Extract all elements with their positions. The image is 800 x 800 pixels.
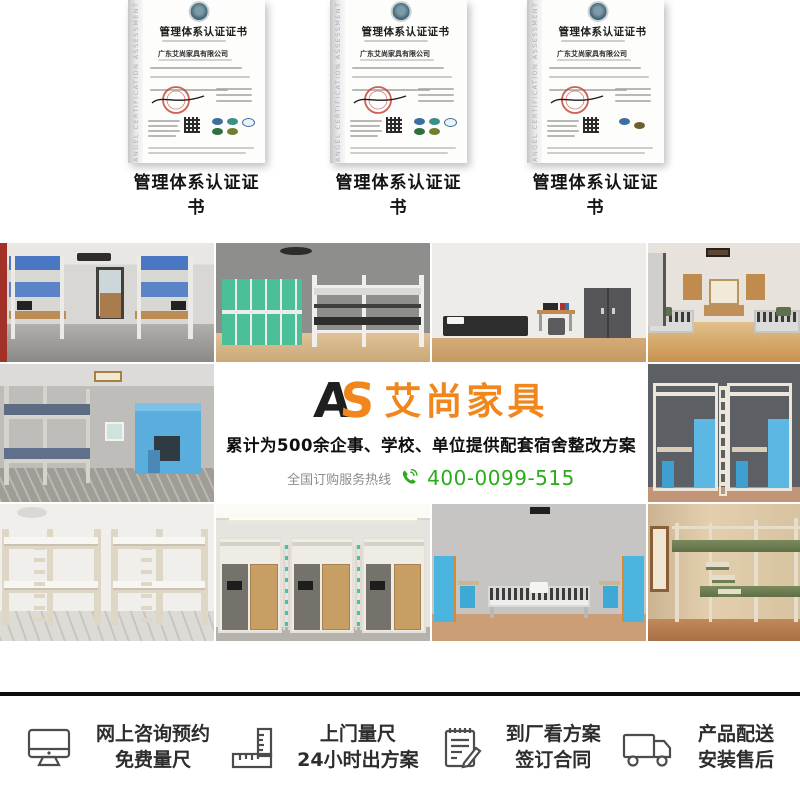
certificate-text-line bbox=[158, 59, 232, 61]
back-desk bbox=[704, 305, 744, 316]
bed-post bbox=[675, 523, 679, 622]
certificates-section: ANGEL CERTIFICATION ASSESSMENT SERVICES … bbox=[0, 0, 800, 240]
bed-shelf bbox=[314, 304, 421, 309]
bunk-bed-panel bbox=[9, 256, 65, 270]
accreditation-badge bbox=[619, 118, 630, 125]
certificate-emblem-icon bbox=[390, 1, 411, 22]
wall-picture bbox=[105, 422, 124, 441]
service-line2: 免费量尺 bbox=[96, 748, 210, 774]
bed-rail bbox=[312, 330, 423, 334]
certificate-title: 管理体系认证证书 bbox=[145, 24, 262, 39]
bed-rail bbox=[4, 415, 90, 419]
lockers bbox=[222, 279, 301, 346]
certificate-side-text: ANGEL CERTIFICATION ASSESSMENT SERVICES bbox=[132, 2, 140, 162]
certificate-footer-line bbox=[547, 130, 579, 132]
service-text: 网上咨询预约 免费量尺 bbox=[96, 722, 210, 773]
certificate-serial bbox=[364, 40, 428, 42]
bunk-bed-panel bbox=[137, 256, 193, 270]
certificate-2: ANGEL CERTIFICATION ASSESSMENT SERVICES … bbox=[330, 0, 467, 163]
accreditation-badge bbox=[414, 118, 425, 125]
certificate-fineprint bbox=[350, 147, 456, 149]
gallery-photo-r1c2 bbox=[216, 243, 430, 362]
accreditation-badge bbox=[227, 118, 238, 125]
certificate-date-line bbox=[615, 100, 651, 102]
service-line1: 上门量尺 bbox=[297, 722, 418, 748]
certificate-side-text: ANGEL CERTIFICATION ASSESSMENT SERVICES bbox=[531, 2, 539, 162]
gallery-photo-r1c3 bbox=[432, 243, 646, 362]
bed-post bbox=[137, 256, 141, 339]
service-item-delivery: 产品配送 安装售后 bbox=[622, 722, 774, 773]
gallery-photo-r3c4 bbox=[648, 504, 800, 641]
floor bbox=[0, 324, 214, 362]
book bbox=[565, 303, 569, 310]
certificate-emblem-icon bbox=[587, 1, 608, 22]
lower-deck bbox=[700, 586, 800, 597]
brand-banner: A S 艾尚家具 累计为500余企事、学校、单位提供配套宿舍整改方案 全国订购服… bbox=[216, 364, 646, 502]
cabinet-seam bbox=[607, 288, 609, 338]
lower-mattress bbox=[4, 581, 98, 591]
promo-page: ANGEL CERTIFICATION ASSESSMENT SERVICES … bbox=[0, 0, 800, 800]
certificate-footer-line bbox=[350, 120, 382, 122]
ceiling-light bbox=[280, 247, 312, 255]
ceiling-light bbox=[706, 248, 730, 258]
contract-icon bbox=[440, 726, 482, 770]
certificate-footer-line bbox=[148, 135, 176, 137]
certificate-title: 管理体系认证证书 bbox=[347, 24, 464, 39]
cabinet-handle bbox=[612, 308, 615, 314]
blue-wardrobe bbox=[434, 556, 455, 622]
certificate-text-line bbox=[150, 76, 250, 78]
certificate-date-line bbox=[418, 94, 454, 96]
chair bbox=[548, 318, 565, 335]
certificate-text-line bbox=[150, 67, 242, 69]
certificate-text-line bbox=[360, 59, 434, 61]
gallery-photo-r1c1 bbox=[0, 243, 214, 362]
gallery-photo-r3c3 bbox=[432, 504, 646, 641]
monitor bbox=[227, 581, 242, 591]
monitor bbox=[370, 581, 385, 591]
bunk-bed-cabinet bbox=[137, 282, 193, 296]
certificate-serial bbox=[162, 40, 226, 42]
wardrobe-door bbox=[250, 564, 278, 630]
service-item-measure: 上门量尺 24小时出方案 bbox=[231, 722, 418, 773]
certificate-date-line bbox=[216, 100, 252, 102]
certificate-fineprint bbox=[148, 152, 246, 154]
service-text: 产品配送 安装售后 bbox=[698, 722, 774, 773]
certificate-company: 广东艾尚家具有限公司 bbox=[360, 49, 430, 59]
certificate-edge: ANGEL CERTIFICATION ASSESSMENT SERVICES bbox=[128, 0, 143, 163]
service-item-contract: 到厂看方案 签订合同 bbox=[440, 722, 601, 773]
certificate-footer-line bbox=[547, 120, 579, 122]
desk-alcove bbox=[222, 564, 248, 630]
pillows bbox=[530, 582, 547, 593]
gallery-photo-r3c2 bbox=[216, 504, 430, 641]
green-bedding bbox=[776, 307, 791, 315]
bed-rail bbox=[730, 392, 789, 396]
partition bbox=[648, 253, 666, 327]
certificate-text-line bbox=[549, 67, 641, 69]
certificate-footer-line bbox=[148, 120, 180, 122]
wall-cabinet bbox=[744, 272, 767, 303]
chair bbox=[603, 586, 618, 608]
laptop bbox=[543, 303, 558, 310]
red-wall bbox=[0, 243, 7, 362]
mattress bbox=[314, 288, 421, 295]
certificate-text-line bbox=[557, 59, 631, 61]
accreditation-badge bbox=[212, 118, 223, 125]
service-item-online-consult: 网上咨询预约 免费量尺 bbox=[26, 722, 210, 773]
bed-post bbox=[754, 520, 758, 621]
service-line1: 网上咨询预约 bbox=[96, 722, 210, 748]
bed-post bbox=[60, 256, 64, 339]
bed-leg bbox=[584, 607, 588, 618]
accreditation-badge bbox=[414, 128, 425, 135]
lower-mattress bbox=[113, 581, 205, 591]
accreditation-badge bbox=[242, 118, 255, 127]
desk bbox=[732, 447, 767, 453]
desk bbox=[458, 581, 479, 585]
desk-alcove bbox=[294, 564, 320, 630]
accreditation-badge bbox=[429, 128, 440, 135]
certificate-fineprint bbox=[148, 147, 254, 149]
bed-leg bbox=[490, 607, 494, 618]
ladder bbox=[719, 386, 727, 496]
bunk-bed-cabinet bbox=[9, 282, 65, 296]
qr-code bbox=[386, 117, 402, 133]
certificate-company: 广东艾尚家具有限公司 bbox=[158, 49, 228, 59]
certificate-title: 管理体系认证证书 bbox=[544, 24, 661, 39]
wardrobe-door bbox=[322, 564, 350, 630]
ladder bbox=[34, 546, 45, 621]
certificate-text-line bbox=[352, 76, 452, 78]
accreditation-badge bbox=[429, 118, 440, 125]
services-bar: 网上咨询预约 免费量尺 上门量尺 24小时出方案 bbox=[0, 696, 800, 800]
mattress bbox=[314, 317, 421, 325]
window bbox=[709, 279, 739, 305]
certificate-caption: 管理体系认证证书 bbox=[128, 168, 265, 218]
certificate-footer-line bbox=[547, 135, 575, 137]
red-seal-icon bbox=[549, 82, 605, 118]
ceiling-light bbox=[77, 253, 111, 261]
cove-light bbox=[229, 518, 417, 521]
blue-wardrobe bbox=[768, 419, 789, 488]
certificate-date-line bbox=[216, 94, 252, 96]
certificate-date-line bbox=[615, 94, 651, 96]
logo-letter-s: S bbox=[338, 377, 376, 425]
upper-deck bbox=[672, 540, 800, 552]
floor bbox=[432, 614, 646, 641]
blue-wardrobe bbox=[694, 419, 715, 488]
gallery-photo-r2c4 bbox=[648, 364, 800, 502]
certificate-date-line bbox=[216, 88, 252, 90]
monitor bbox=[298, 581, 313, 591]
accreditation-badge bbox=[444, 118, 457, 127]
gallery-photo-r3c1 bbox=[0, 504, 214, 641]
gallery-photo-r1c4 bbox=[648, 243, 800, 362]
desk bbox=[599, 581, 620, 585]
certificate-date-line bbox=[615, 88, 651, 90]
ladder bbox=[141, 546, 152, 621]
ceiling-light bbox=[94, 371, 122, 382]
bed-rail bbox=[4, 459, 90, 463]
bed-rail bbox=[292, 542, 352, 546]
upper-mattress bbox=[4, 404, 90, 415]
qr-code bbox=[184, 117, 200, 133]
hotline-row: 全国订购服务热线 400-0099-515 bbox=[216, 466, 646, 490]
gallery-photo-r2c1 bbox=[0, 364, 214, 502]
certificate-text-line bbox=[549, 76, 649, 78]
door bbox=[100, 293, 121, 318]
truck-icon bbox=[622, 727, 674, 769]
service-line2: 签订合同 bbox=[506, 748, 601, 774]
certificate-footer-line bbox=[148, 125, 178, 127]
bed-post bbox=[43, 386, 47, 485]
ladder bbox=[355, 545, 362, 630]
bed-post bbox=[4, 386, 8, 485]
bed-rail bbox=[672, 526, 800, 529]
certificate-caption: 管理体系认证证书 bbox=[527, 168, 664, 218]
desk-leg bbox=[539, 313, 542, 331]
certificate-footer-line bbox=[350, 135, 378, 137]
wall-cabinet bbox=[681, 272, 704, 303]
stair-step bbox=[712, 575, 735, 583]
certificate-text-line bbox=[352, 67, 444, 69]
phone-icon bbox=[399, 468, 419, 488]
certificate-serial bbox=[561, 40, 625, 42]
upper-mattress bbox=[113, 537, 205, 547]
brand-logo: A S 艾尚家具 bbox=[216, 375, 646, 427]
service-line1: 到厂看方案 bbox=[506, 722, 601, 748]
service-line2: 24小时出方案 bbox=[297, 748, 418, 774]
hotline-label: 全国订购服务热线 bbox=[287, 469, 391, 488]
desk bbox=[657, 447, 692, 453]
bed-rail bbox=[656, 392, 715, 396]
qr-code bbox=[583, 117, 599, 133]
stair-step bbox=[706, 562, 729, 570]
chair bbox=[662, 461, 674, 489]
ruler-icon bbox=[231, 727, 273, 769]
photo-gallery: A S 艾尚家具 累计为500余企事、学校、单位提供配套宿舍整改方案 全国订购服… bbox=[0, 243, 800, 641]
laptop bbox=[17, 301, 32, 309]
certificate-1: ANGEL CERTIFICATION ASSESSMENT SERVICES … bbox=[128, 0, 265, 163]
accreditation-badge bbox=[212, 128, 223, 135]
certificate-footer-line bbox=[148, 130, 180, 132]
bed-post bbox=[86, 389, 90, 483]
service-text: 上门量尺 24小时出方案 bbox=[297, 722, 418, 773]
ladder bbox=[283, 545, 290, 630]
service-line2: 安装售后 bbox=[698, 748, 774, 774]
lower-mattress bbox=[4, 448, 90, 459]
certificate-footer-line bbox=[547, 125, 577, 127]
desk bbox=[135, 311, 193, 319]
floor bbox=[648, 619, 800, 641]
desk bbox=[9, 311, 67, 319]
accreditation-badge bbox=[227, 128, 238, 135]
certificate-footer-line bbox=[350, 125, 380, 127]
bed-rail bbox=[220, 542, 280, 546]
bed-rail bbox=[364, 542, 424, 546]
bed-post bbox=[11, 256, 15, 339]
certificate-fineprint bbox=[547, 147, 653, 149]
upper-mattress bbox=[4, 537, 98, 547]
certificate-fineprint bbox=[350, 152, 448, 154]
chair bbox=[148, 450, 161, 473]
hotline-number[interactable]: 400-0099-515 bbox=[427, 466, 575, 490]
desk-alcove bbox=[366, 564, 392, 630]
chair bbox=[460, 586, 475, 608]
certificate-edge: ANGEL CERTIFICATION ASSESSMENT SERVICES bbox=[330, 0, 345, 163]
ceiling-light bbox=[17, 507, 47, 518]
pillow bbox=[447, 317, 464, 324]
service-line1: 产品配送 bbox=[698, 722, 774, 748]
certificate-date-line bbox=[418, 88, 454, 90]
bed-post bbox=[188, 256, 192, 339]
stair-step bbox=[718, 589, 741, 597]
ceiling-light bbox=[530, 507, 549, 514]
brand-name: 艾尚家具 bbox=[384, 383, 548, 420]
window bbox=[650, 526, 670, 592]
banner-headline: 累计为500余企事、学校、单位提供配套宿舍整改方案 bbox=[216, 432, 646, 456]
bed-post bbox=[709, 523, 713, 622]
certificate-emblem-icon bbox=[188, 1, 209, 22]
bed-post bbox=[794, 518, 798, 622]
laptop bbox=[171, 301, 186, 309]
red-seal-icon bbox=[150, 82, 206, 118]
service-text: 到厂看方案 签订合同 bbox=[506, 722, 601, 773]
floor bbox=[0, 611, 214, 641]
certificate-footer-line bbox=[350, 130, 382, 132]
certificate-3: ANGEL CERTIFICATION ASSESSMENT SERVICES … bbox=[527, 0, 664, 163]
certificate-fineprint bbox=[547, 152, 645, 154]
certificate-edge: ANGEL CERTIFICATION ASSESSMENT SERVICES bbox=[527, 0, 542, 163]
monitor-icon bbox=[26, 727, 72, 769]
cabinet-handle bbox=[601, 308, 604, 314]
wardrobe-top bbox=[135, 403, 201, 411]
red-seal-icon bbox=[352, 82, 408, 118]
desk-leg bbox=[569, 313, 572, 331]
chair bbox=[736, 461, 748, 489]
certificate-side-text: ANGEL CERTIFICATION ASSESSMENT SERVICES bbox=[334, 2, 342, 162]
wardrobe-door bbox=[394, 564, 422, 630]
blue-wardrobe bbox=[622, 556, 643, 622]
certificate-company: 广东艾尚家具有限公司 bbox=[557, 49, 627, 59]
accreditation-badge bbox=[634, 122, 645, 129]
certificate-caption: 管理体系认证证书 bbox=[330, 168, 467, 218]
certificate-date-line bbox=[418, 100, 454, 102]
floor bbox=[432, 338, 646, 362]
